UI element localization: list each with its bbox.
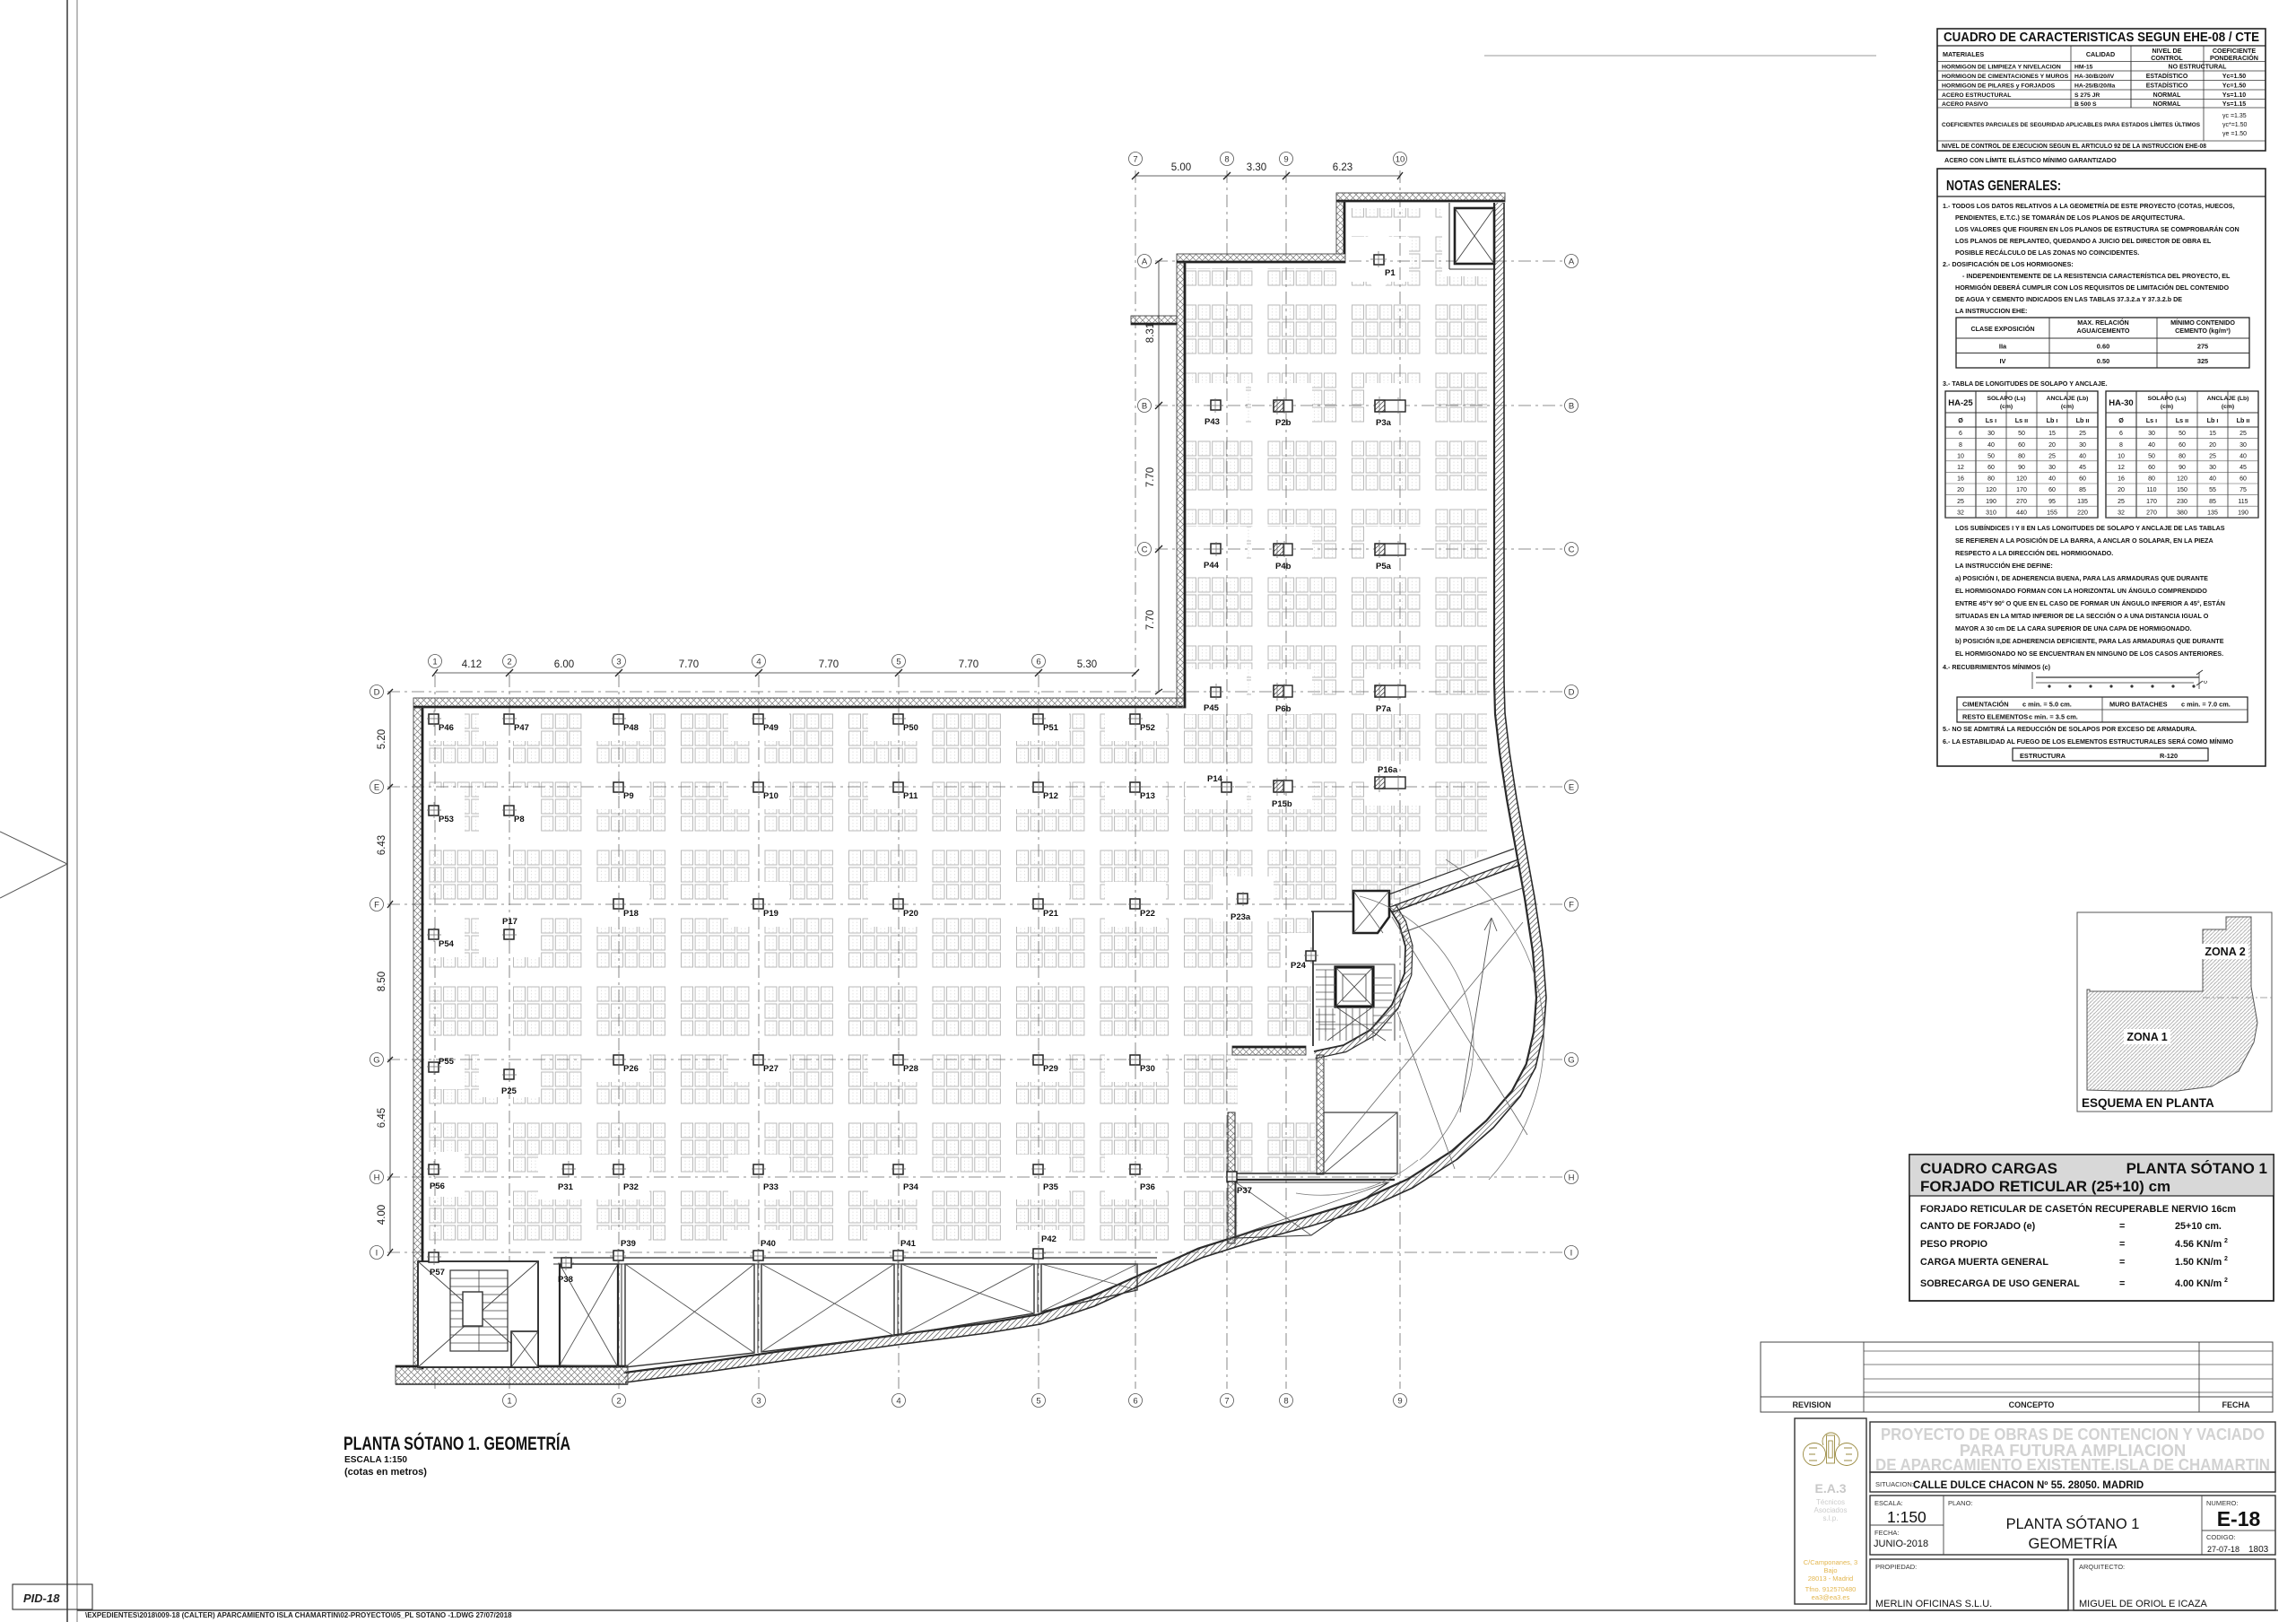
svg-text:P14: P14: [1207, 774, 1223, 784]
svg-text:40: 40: [2079, 453, 2086, 459]
svg-text:275: 275: [2197, 343, 2208, 351]
svg-text:a) POSICIÓN I, DE ADHERENCIA B: a) POSICIÓN I, DE ADHERENCIA BUENA, PARA…: [1955, 574, 2208, 582]
svg-text:RESTO ELEMENTOS: RESTO ELEMENTOS: [1962, 713, 2028, 721]
svg-text:CONTROL: CONTROL: [2151, 54, 2183, 62]
svg-text:P13: P13: [1140, 791, 1155, 801]
svg-text:60: 60: [2148, 465, 2155, 471]
svg-text:P7a: P7a: [1376, 704, 1392, 714]
svg-text:ea3@ea3.es: ea3@ea3.es: [1812, 1593, 1850, 1601]
svg-text:P54: P54: [439, 939, 455, 949]
svg-text:P22: P22: [1140, 909, 1155, 919]
svg-text:R-120: R-120: [2160, 752, 2178, 760]
svg-text:P51: P51: [1043, 723, 1059, 733]
svg-text:2: 2: [616, 1396, 621, 1406]
svg-text:P16a: P16a: [1378, 765, 1398, 775]
svg-text:25: 25: [1957, 499, 1964, 505]
svg-text:P57: P57: [430, 1268, 445, 1278]
svg-text:(cm): (cm): [2161, 404, 2173, 410]
svg-text:JUNIO-2018: JUNIO-2018: [1874, 1539, 1928, 1549]
svg-text:ACERO PASIVO: ACERO PASIVO: [1942, 101, 1988, 108]
svg-text:25: 25: [2239, 431, 2247, 437]
svg-text:P12: P12: [1043, 791, 1058, 801]
svg-text:4.00 KN/m: 4.00 KN/m: [2175, 1278, 2222, 1289]
svg-text:30: 30: [2209, 465, 2216, 471]
svg-text:7.70: 7.70: [959, 659, 978, 670]
svg-text:SE REFIEREN A LA POSICIÓN DE L: SE REFIEREN A LA POSICIÓN DE LA BARRA, A…: [1955, 536, 2213, 545]
svg-text:P45: P45: [1204, 703, 1220, 713]
svg-text:40: 40: [1987, 442, 1995, 449]
svg-text:P9: P9: [623, 791, 634, 801]
svg-text:4.- RECUBRIMIENTOS MÍNIMOS (c): 4.- RECUBRIMIENTOS MÍNIMOS (c): [1943, 663, 2051, 671]
svg-text:25: 25: [2209, 453, 2216, 459]
svg-text:15: 15: [2209, 431, 2216, 437]
svg-text:1: 1: [507, 1396, 511, 1406]
svg-text:8: 8: [1283, 1396, 1288, 1406]
svg-text:ESQUEMA EN PLANTA: ESQUEMA EN PLANTA: [2082, 1096, 2214, 1110]
svg-text:50: 50: [2148, 453, 2155, 459]
svg-text:190: 190: [1986, 499, 1996, 505]
svg-text:CALLE DULCE CHACON Nº 55. 2805: CALLE DULCE CHACON Nº 55. 28050. MADRID: [1913, 1480, 2144, 1491]
svg-text:CEMENTO (kg/m³): CEMENTO (kg/m³): [2175, 327, 2231, 335]
svg-text:20: 20: [1957, 487, 1964, 493]
svg-text:Ø: Ø: [1958, 416, 1963, 424]
svg-text:50: 50: [2179, 431, 2186, 437]
svg-text:1.50 KN/m: 1.50 KN/m: [2175, 1257, 2222, 1268]
svg-text:230: 230: [2177, 499, 2187, 505]
svg-text:EL HORMIGONADO NO SE ENCUENTRA: EL HORMIGONADO NO SE ENCUENTRAN EN NINGU…: [1955, 650, 2223, 658]
svg-text:=: =: [2119, 1278, 2125, 1289]
svg-text:(cm): (cm): [2000, 404, 2013, 410]
svg-text:440: 440: [2016, 510, 2027, 516]
svg-text:E-18: E-18: [2217, 1507, 2261, 1530]
svg-text:2: 2: [2224, 1278, 2228, 1284]
svg-text:40: 40: [2239, 453, 2247, 459]
svg-text:3: 3: [616, 657, 621, 667]
svg-text:60: 60: [1987, 465, 1995, 471]
svg-text:A: A: [1569, 257, 1575, 266]
svg-text:7.70: 7.70: [1145, 467, 1156, 487]
svg-text:FECHA: FECHA: [2222, 1400, 2250, 1409]
svg-text:P48: P48: [623, 723, 639, 733]
svg-text:AGUA/CEMENTO: AGUA/CEMENTO: [2077, 327, 2130, 335]
svg-text:ESCALA:: ESCALA:: [1874, 1499, 1903, 1507]
svg-text:6.45: 6.45: [377, 1108, 387, 1128]
svg-text:40: 40: [2209, 476, 2216, 483]
svg-text:H: H: [1569, 1173, 1575, 1182]
svg-text:7: 7: [1224, 1396, 1229, 1406]
svg-text:P32: P32: [623, 1182, 639, 1192]
svg-text:SOLAPO (Ls): SOLAPO (Ls): [2147, 396, 2186, 402]
svg-text:P23a: P23a: [1231, 912, 1251, 922]
svg-text:Lb ı: Lb ı: [2207, 416, 2219, 424]
svg-text:4: 4: [756, 657, 761, 667]
svg-text:ANCLAJE (Lb): ANCLAJE (Lb): [2207, 396, 2249, 402]
svg-text:20: 20: [2118, 487, 2125, 493]
svg-text:CIMENTACIÓN: CIMENTACIÓN: [1962, 701, 2009, 709]
svg-text:RESPECTO A LA DIRECCIÓN DEL HO: RESPECTO A LA DIRECCIÓN DEL HORMIGONADO.: [1955, 549, 2113, 557]
svg-text:80: 80: [2179, 453, 2186, 459]
svg-text:7: 7: [1133, 154, 1137, 164]
svg-text:P40: P40: [761, 1239, 776, 1249]
svg-text:b) POSICIÓN II,DE ADHERENCIA D: b) POSICIÓN II,DE ADHERENCIA DEFICIENTE,…: [1955, 637, 2224, 645]
svg-text:c min. = 5.0 cm.: c min. = 5.0 cm.: [2022, 701, 2072, 709]
svg-text:P53: P53: [439, 815, 454, 824]
svg-text:170: 170: [2146, 499, 2157, 505]
svg-text:85: 85: [2209, 499, 2216, 505]
svg-text:c: c: [2203, 680, 2209, 684]
svg-text:8.31: 8.31: [1145, 323, 1156, 343]
svg-text:I: I: [376, 1248, 378, 1258]
svg-text:s.l.p.: s.l.p.: [1823, 1514, 1839, 1522]
svg-text:80: 80: [2148, 476, 2155, 483]
svg-text:ACERO CON LÍMITE ELÁSTICO MÍNI: ACERO CON LÍMITE ELÁSTICO MÍNIMO GARANTI…: [1944, 156, 2117, 164]
svg-text:4.00: 4.00: [377, 1205, 387, 1225]
svg-text:60: 60: [2179, 442, 2186, 449]
svg-text:MATERIALES: MATERIALES: [1943, 50, 1984, 58]
svg-text:135: 135: [2207, 510, 2218, 516]
svg-text:170: 170: [2016, 487, 2027, 493]
svg-text:LOS PLANOS DE REPLANTEO, QUEDA: LOS PLANOS DE REPLANTEO, QUEDANDO A JUIC…: [1955, 237, 2212, 245]
svg-text:FECHA:: FECHA:: [1874, 1529, 1900, 1537]
svg-text:30: 30: [2079, 442, 2086, 449]
svg-text:ESTADÍSTICO: ESTADÍSTICO: [2146, 82, 2188, 90]
svg-text:P55: P55: [439, 1057, 455, 1067]
svg-text:6.43: 6.43: [377, 835, 387, 855]
svg-text:P3a: P3a: [1376, 418, 1392, 428]
svg-text:SITUADAS EN LA MITAD INFERIOR: SITUADAS EN LA MITAD INFERIOR DE LA SECC…: [1955, 612, 2209, 620]
svg-text:CLASE EXPOSICIÓN: CLASE EXPOSICIÓN: [1970, 325, 2034, 333]
svg-text:P34: P34: [903, 1182, 919, 1192]
svg-text:1.- TODOS LOS DATOS RELATIVOS: 1.- TODOS LOS DATOS RELATIVOS A LA GEOME…: [1943, 202, 2235, 210]
svg-text:2.- DOSIFICACIÓN DE LOS HORMIG: 2.- DOSIFICACIÓN DE LOS HORMIGONES:: [1943, 260, 2074, 268]
svg-text:45: 45: [2239, 465, 2247, 471]
svg-text:P44: P44: [1204, 561, 1220, 571]
svg-text:ANCLAJE (Lb): ANCLAJE (Lb): [2047, 396, 2089, 402]
svg-text:P11: P11: [903, 791, 918, 801]
svg-text:32: 32: [2118, 510, 2125, 516]
svg-text:PID-18: PID-18: [23, 1591, 60, 1605]
svg-text:(cm): (cm): [2222, 404, 2234, 410]
svg-text:5.00: 5.00: [1171, 162, 1191, 173]
svg-text:G: G: [373, 1055, 379, 1065]
svg-text:7.70: 7.70: [819, 659, 839, 670]
svg-text:1: 1: [432, 657, 437, 667]
svg-text:30: 30: [1987, 431, 1995, 437]
svg-text:c min. = 3.5 cm.: c min. = 3.5 cm.: [2029, 713, 2078, 721]
svg-text:32: 32: [1957, 510, 1964, 516]
svg-text:60: 60: [2048, 487, 2056, 493]
svg-text:270: 270: [2146, 510, 2157, 516]
svg-text:40: 40: [2048, 476, 2056, 483]
svg-text:FORJADO RETICULAR (25+10) cm: FORJADO RETICULAR (25+10) cm: [1920, 1178, 2170, 1195]
svg-text:F: F: [1569, 900, 1574, 910]
svg-text:D: D: [1569, 687, 1575, 697]
svg-text:15: 15: [2048, 431, 2056, 437]
svg-text:150: 150: [2177, 487, 2187, 493]
svg-text:B: B: [1142, 401, 1147, 411]
svg-text:C/Camponanes, 3: C/Camponanes, 3: [1804, 1558, 1857, 1566]
svg-text:CARGA MUERTA GENERAL: CARGA MUERTA GENERAL: [1920, 1257, 2048, 1268]
svg-text:Ys=1.10: Ys=1.10: [2222, 92, 2246, 99]
svg-text:HA-25/B/20/IIa: HA-25/B/20/IIa: [2074, 83, 2116, 90]
svg-text:P38: P38: [558, 1275, 573, 1285]
svg-text:=: =: [2119, 1239, 2125, 1250]
svg-text:6.- LA ESTABILIDAD AL FUEGO DE: 6.- LA ESTABILIDAD AL FUEGO DE LOS ELEME…: [1943, 737, 2234, 746]
svg-text:190: 190: [2238, 510, 2248, 516]
svg-text:HA-30/B/20/IV: HA-30/B/20/IV: [2074, 74, 2115, 80]
svg-text:FORJADO RETICULAR DE CASETÓN R: FORJADO RETICULAR DE CASETÓN RECUPERABLE…: [1920, 1203, 2236, 1215]
svg-text:NIVEL DE CONTROL DE EJECUCION: NIVEL DE CONTROL DE EJECUCION SEGUN EL A…: [1942, 144, 2206, 150]
svg-text:P1: P1: [1385, 268, 1396, 278]
svg-text:SOLAPO (Ls): SOLAPO (Ls): [1987, 396, 2025, 402]
svg-text:P46: P46: [439, 723, 454, 733]
svg-text:MAX. RELACIÓN: MAX. RELACIÓN: [2077, 318, 2129, 327]
svg-text:Ø: Ø: [2118, 416, 2124, 424]
svg-text:B: B: [1569, 401, 1574, 411]
svg-text:50: 50: [1987, 453, 1995, 459]
svg-text:28013 - Madrid: 28013 - Madrid: [1808, 1574, 1853, 1583]
svg-text:P21: P21: [1043, 909, 1059, 919]
svg-text:P20: P20: [903, 909, 918, 919]
svg-text:P4b: P4b: [1275, 562, 1291, 571]
svg-text:H: H: [374, 1173, 380, 1182]
svg-text:60: 60: [2018, 442, 2025, 449]
svg-text:6: 6: [2119, 431, 2123, 437]
svg-text:P10: P10: [763, 791, 778, 801]
svg-text:P15b: P15b: [1272, 799, 1292, 809]
svg-text:G: G: [1568, 1055, 1574, 1065]
svg-text:PONDERACIÓN: PONDERACIÓN: [2210, 54, 2258, 62]
svg-text:16: 16: [2118, 476, 2125, 483]
svg-text:85: 85: [2079, 487, 2086, 493]
svg-text:COEFICIENTES PARCIALES DE SEGU: COEFICIENTES PARCIALES DE SEGURIDAD APLI…: [1942, 120, 2200, 128]
svg-text:LA INSTRUCCION EHE:: LA INSTRUCCION EHE:: [1955, 307, 2027, 315]
svg-text:5.30: 5.30: [1077, 659, 1097, 670]
svg-text:4.56 KN/m: 4.56 KN/m: [2175, 1239, 2222, 1250]
svg-text:ENTRE 45°Y 90° O QUE EN EL CAS: ENTRE 45°Y 90° O QUE EN EL CASO DE FORMA…: [1955, 599, 2225, 607]
svg-text:6.00: 6.00: [554, 659, 574, 670]
svg-text:S 275 JR: S 275 JR: [2074, 92, 2100, 99]
svg-text:120: 120: [2016, 476, 2027, 483]
svg-text:7.70: 7.70: [1145, 610, 1156, 630]
svg-text:75: 75: [2239, 487, 2247, 493]
svg-text:P5a: P5a: [1376, 562, 1392, 571]
svg-text:P50: P50: [903, 723, 918, 733]
svg-text:P29: P29: [1043, 1064, 1058, 1074]
svg-text:C: C: [1142, 545, 1148, 554]
svg-text:2: 2: [2224, 1238, 2228, 1244]
svg-text:Lb ıı: Lb ıı: [2237, 416, 2250, 424]
svg-text:380: 380: [2177, 510, 2187, 516]
svg-text:135: 135: [2077, 499, 2088, 505]
svg-text:HORMIGON DE LIMPIEZA Y NIVELAC: HORMIGON DE LIMPIEZA Y NIVELACION: [1942, 65, 2061, 71]
svg-text:P28: P28: [903, 1064, 918, 1074]
svg-text:270: 270: [2016, 499, 2027, 505]
svg-text:3: 3: [756, 1396, 761, 1406]
svg-text:80: 80: [1987, 476, 1995, 483]
svg-text:NORMAL: NORMAL: [2153, 92, 2181, 99]
svg-text:Yc=1.50: Yc=1.50: [2222, 83, 2246, 90]
svg-text:60: 60: [2079, 476, 2086, 483]
svg-text:HA-25: HA-25: [1948, 398, 1973, 408]
svg-text:P35: P35: [1043, 1182, 1059, 1192]
svg-text:5.- NO SE ADMITIRÁ LA REDUCCIÓ: 5.- NO SE ADMITIRÁ LA REDUCCIÓN DE SOLAP…: [1943, 725, 2196, 733]
svg-text:P8: P8: [514, 815, 525, 824]
svg-text:C: C: [1569, 545, 1575, 554]
svg-text:30: 30: [2148, 431, 2155, 437]
svg-text:325: 325: [2197, 357, 2208, 365]
svg-text:PROPIEDAD:: PROPIEDAD:: [1875, 1563, 1917, 1571]
svg-text:NORMAL: NORMAL: [2153, 101, 2181, 108]
svg-text:90: 90: [2179, 465, 2186, 471]
svg-text:EL HORMIGONADO FORMAN CON LA H: EL HORMIGONADO FORMAN CON LA HORIZONTAL …: [1955, 587, 2207, 595]
svg-text:5.20: 5.20: [377, 729, 387, 749]
svg-text:Asociados: Asociados: [1814, 1506, 1848, 1514]
svg-text:P47: P47: [514, 723, 529, 733]
svg-text:PENDIENTES, E.T.C.) SE TOMARÁN: PENDIENTES, E.T.C.) SE TOMARÁN DE LOS PL…: [1955, 214, 2185, 222]
svg-text:HORMIGON DE CIMENTACIONES Y MU: HORMIGON DE CIMENTACIONES Y MUROS: [1942, 74, 2069, 80]
svg-text:Ls ı: Ls ı: [2146, 416, 2157, 424]
svg-text:CANTO DE FORJADO (e): CANTO DE FORJADO (e): [1920, 1221, 2036, 1232]
svg-text:4: 4: [896, 1396, 900, 1406]
svg-text:50: 50: [2018, 431, 2025, 437]
svg-text:20: 20: [2209, 442, 2216, 449]
svg-text:(cm): (cm): [2061, 404, 2074, 410]
svg-text:Técnicos: Técnicos: [1816, 1498, 1845, 1506]
svg-text:12: 12: [2118, 465, 2125, 471]
svg-text:P49: P49: [763, 723, 778, 733]
svg-text:20: 20: [2048, 442, 2056, 449]
svg-text:120: 120: [1986, 487, 1996, 493]
svg-text:P26: P26: [623, 1064, 639, 1074]
svg-text:E.A.3: E.A.3: [1814, 1481, 1846, 1496]
svg-text:SITUACION:: SITUACION:: [1875, 1480, 1914, 1488]
svg-text:6.23: 6.23: [1333, 162, 1352, 173]
svg-text:NO ESTRUCTURAL: NO ESTRUCTURAL: [2169, 65, 2228, 71]
svg-text:ESCALA 1:150: ESCALA 1:150: [344, 1454, 407, 1465]
svg-text:8: 8: [1959, 442, 1962, 449]
svg-text:4.12: 4.12: [462, 659, 482, 670]
svg-text:I: I: [1570, 1248, 1573, 1258]
svg-text:MAYOR A 30 cm DE LA CARA SUPER: MAYOR A 30 cm DE LA CARA SUPERIOR DE UNA…: [1955, 624, 2192, 632]
svg-text:Yc=1.50: Yc=1.50: [2222, 74, 2246, 80]
svg-text:LOS VALORES QUE FIGUREN EN LOS: LOS VALORES QUE FIGUREN EN LOS PLANOS DE…: [1955, 225, 2239, 233]
svg-text:MURO BATACHES: MURO BATACHES: [2109, 701, 2168, 709]
svg-text:2: 2: [507, 657, 511, 667]
svg-text:P25: P25: [501, 1086, 517, 1096]
svg-text:115: 115: [2238, 499, 2248, 505]
svg-text:310: 310: [1986, 510, 1996, 516]
svg-text:CUADRO CARGAS: CUADRO CARGAS: [1920, 1160, 2057, 1177]
svg-text:25+10 cm.: 25+10 cm.: [2175, 1221, 2222, 1232]
svg-text:POSIBLE RECÁLCULO DE LAS ZONAS: POSIBLE RECÁLCULO DE LAS ZONAS NO COINCI…: [1955, 249, 2139, 257]
svg-text:ACERO ESTRUCTURAL: ACERO ESTRUCTURAL: [1942, 92, 2011, 99]
svg-text:PESO PROPIO: PESO PROPIO: [1920, 1239, 1987, 1250]
svg-text:PLANTA SÓTANO 1: PLANTA SÓTANO 1: [2006, 1515, 2140, 1532]
svg-text:10: 10: [1957, 453, 1964, 459]
svg-text:6: 6: [1133, 1396, 1137, 1406]
svg-text:PLANO:: PLANO:: [1948, 1499, 1973, 1507]
svg-text:ARQUITECTO:: ARQUITECTO:: [2079, 1563, 2125, 1571]
svg-text:ZONA 2: ZONA 2: [2205, 946, 2245, 958]
svg-text:P42: P42: [1041, 1234, 1057, 1244]
svg-text:B 500 S: B 500 S: [2074, 101, 2097, 108]
svg-text:IIa: IIa: [1999, 343, 2007, 351]
svg-text:Ys=1.15: Ys=1.15: [2222, 101, 2246, 108]
svg-text:CODIGO:: CODIGO:: [2206, 1533, 2236, 1541]
svg-text:PLANTA SÓTANO 1: PLANTA SÓTANO 1: [2126, 1160, 2267, 1177]
svg-text:P19: P19: [763, 909, 778, 919]
svg-text:0.60: 0.60: [2097, 343, 2109, 351]
svg-text:LA INSTRUCCIÓN EHE DEFINE:: LA INSTRUCCIÓN EHE DEFINE:: [1955, 562, 2053, 570]
svg-text:40: 40: [2148, 442, 2155, 449]
svg-text:ZONA 1: ZONA 1: [2126, 1031, 2167, 1043]
svg-text:12: 12: [1957, 465, 1964, 471]
svg-text:6: 6: [1959, 431, 1962, 437]
svg-text:Tfno. 912570480: Tfno. 912570480: [1805, 1585, 1857, 1593]
svg-text:LOS SUBÍNDICES I Y II EN LAS: LOS SUBÍNDICES I Y II EN LAS LONGITUDES …: [1955, 524, 2225, 532]
svg-text:A: A: [1142, 257, 1148, 266]
svg-text:Ls ı: Ls ı: [1986, 416, 1996, 424]
svg-text:5: 5: [896, 657, 900, 667]
svg-text:IV: IV: [2000, 357, 2006, 365]
svg-text:REVISION: REVISION: [1792, 1400, 1831, 1409]
svg-text:5: 5: [1036, 1396, 1040, 1406]
svg-text:CALIDAD: CALIDAD: [2086, 50, 2115, 58]
svg-text:D: D: [374, 687, 380, 697]
svg-text:Ls ıı: Ls ıı: [2015, 416, 2028, 424]
svg-text:1803: 1803: [2248, 1545, 2269, 1555]
svg-text:7.70: 7.70: [679, 659, 699, 670]
svg-text:P27: P27: [763, 1064, 778, 1074]
svg-text:45: 45: [2079, 465, 2086, 471]
svg-text:PLANTA SÓTANO 1. GEOMETRÍA: PLANTA SÓTANO 1. GEOMETRÍA: [344, 1433, 570, 1454]
svg-text:c min. = 7.0 cm.: c min. = 7.0 cm.: [2181, 701, 2231, 709]
svg-text:CONCEPTO: CONCEPTO: [2009, 1400, 2055, 1409]
svg-text:HA-30: HA-30: [2109, 398, 2133, 408]
svg-text:NOTAS GENERALES:: NOTAS GENERALES:: [1946, 179, 2061, 194]
svg-text:CUADRO DE CARACTERISTICAS SEGU: CUADRO DE CARACTERISTICAS SEGUN EHE-08 /…: [1944, 31, 2259, 45]
svg-text:8: 8: [2119, 442, 2123, 449]
svg-text:120: 120: [2177, 476, 2187, 483]
svg-text:P30: P30: [1140, 1064, 1155, 1074]
svg-text:P2b: P2b: [1275, 418, 1291, 428]
svg-text:P17: P17: [502, 917, 517, 927]
svg-text:MERLIN OFICINAS S.L.U.: MERLIN OFICINAS S.L.U.: [1875, 1599, 1992, 1609]
svg-text:1:150: 1:150: [1887, 1508, 1926, 1526]
svg-text:3.30: 3.30: [1247, 162, 1266, 173]
svg-text:Bajo: Bajo: [1823, 1566, 1837, 1574]
svg-text:P24: P24: [1291, 961, 1307, 971]
svg-text:\EXPEDIENTES\2018\009-18 (CAL: \EXPEDIENTES\2018\009-18 (CALTER) APARCA…: [85, 1611, 512, 1619]
svg-text:=: =: [2119, 1221, 2125, 1232]
svg-text:ESTADÍSTICO: ESTADÍSTICO: [2146, 72, 2188, 80]
svg-text:HORMIGÓN DEBERÁ CUMPLIR CON LO: HORMIGÓN DEBERÁ CUMPLIR CON LOS REQUISIT…: [1955, 283, 2229, 292]
svg-text:3.- TABLA DE LONGITUDES DE SOL: 3.- TABLA DE LONGITUDES DE SOLAPO Y ANCL…: [1943, 379, 2108, 388]
svg-text:P18: P18: [623, 909, 639, 919]
svg-text:110: 110: [2146, 487, 2156, 493]
svg-text:9: 9: [1283, 154, 1288, 164]
svg-text:P37: P37: [1237, 1186, 1252, 1196]
svg-text:P36: P36: [1140, 1182, 1155, 1192]
svg-text:P43: P43: [1205, 417, 1220, 427]
svg-text:E: E: [374, 782, 379, 792]
svg-text:GEOMETRÍA: GEOMETRÍA: [2028, 1535, 2117, 1552]
svg-text:HM-15: HM-15: [2074, 65, 2093, 71]
svg-text:=: =: [2119, 1257, 2125, 1268]
svg-text:DE AGUA Y CEMENTO INDICADOS EN: DE AGUA Y CEMENTO INDICADOS EN LAS TABLA…: [1955, 295, 2182, 303]
svg-text:55: 55: [2209, 487, 2216, 493]
